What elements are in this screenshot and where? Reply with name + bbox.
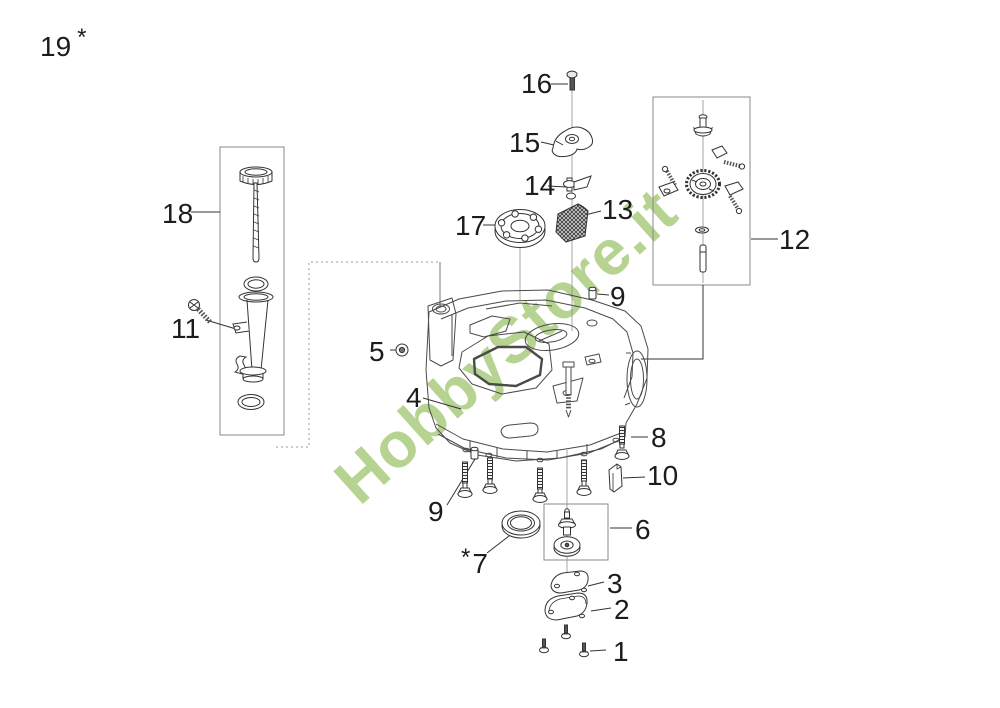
callout-5: 5 bbox=[369, 338, 385, 366]
callout-6: 6 bbox=[635, 516, 651, 544]
callout-2: 2 bbox=[614, 596, 630, 624]
callout-1: 1 bbox=[613, 638, 629, 666]
key-10 bbox=[609, 464, 622, 492]
leader-2 bbox=[591, 608, 611, 611]
callout-16: 16 bbox=[521, 70, 552, 98]
parts-diagram-page: HobbyStore.it bbox=[0, 0, 1000, 708]
governor-assembly-12 bbox=[659, 115, 745, 272]
asterisk-7: * bbox=[461, 544, 470, 571]
governor-bracket-top bbox=[712, 146, 745, 169]
flange-bolt bbox=[483, 458, 497, 494]
dipstick-assembly-18 bbox=[233, 167, 273, 410]
callout-12: 12 bbox=[779, 226, 810, 254]
exploded-diagram: HobbyStore.it bbox=[0, 0, 1000, 708]
leader-3 bbox=[588, 582, 604, 586]
leader-10 bbox=[623, 477, 645, 478]
plug-5 bbox=[396, 344, 408, 356]
flange-bolt bbox=[577, 460, 591, 496]
leader-7 bbox=[487, 536, 509, 553]
oil-seal-7 bbox=[502, 511, 540, 538]
asterisk-19: * bbox=[77, 24, 86, 51]
leader-12-drop bbox=[641, 285, 703, 359]
callout-10: 10 bbox=[647, 462, 678, 490]
screws-1 bbox=[540, 625, 589, 657]
callout-9-top: 9 bbox=[610, 283, 626, 311]
pan-screw bbox=[580, 643, 589, 657]
callout-4: 4 bbox=[406, 384, 422, 412]
leader-15 bbox=[541, 142, 554, 145]
cover-plate-2 bbox=[545, 593, 587, 620]
callout-19: 19* bbox=[40, 33, 87, 61]
governor-bracket-right bbox=[725, 182, 743, 214]
callout-9-bottom: 9 bbox=[428, 498, 444, 526]
governor-bracket-left bbox=[659, 166, 678, 196]
dowel-9-bottom bbox=[471, 447, 478, 459]
screen-13 bbox=[556, 204, 588, 242]
pan-screw bbox=[540, 639, 549, 653]
callout-11: 11 bbox=[171, 315, 200, 343]
leader-1 bbox=[590, 650, 606, 651]
callout-8: 8 bbox=[651, 424, 667, 452]
breather-14 bbox=[564, 176, 592, 199]
callout-7: *7 bbox=[461, 550, 488, 578]
callout-13: 13 bbox=[602, 196, 633, 224]
oil-pump-6 bbox=[554, 509, 580, 556]
flange-bolt bbox=[533, 468, 547, 503]
callout-18: 18 bbox=[162, 200, 193, 228]
bearing-17 bbox=[495, 210, 545, 248]
callout-17: 17 bbox=[455, 212, 486, 240]
sump-bolts bbox=[458, 458, 591, 503]
governor-gear bbox=[687, 171, 720, 198]
pan-screw bbox=[562, 625, 571, 639]
cover-plate-3 bbox=[551, 571, 588, 593]
callout-15: 15 bbox=[509, 129, 540, 157]
dowel-9-top bbox=[589, 287, 596, 299]
screw-16 bbox=[567, 71, 577, 90]
bolt-8 bbox=[615, 426, 629, 460]
leader-9b bbox=[447, 459, 475, 505]
callout-14: 14 bbox=[524, 172, 555, 200]
bracket-15 bbox=[552, 127, 592, 157]
